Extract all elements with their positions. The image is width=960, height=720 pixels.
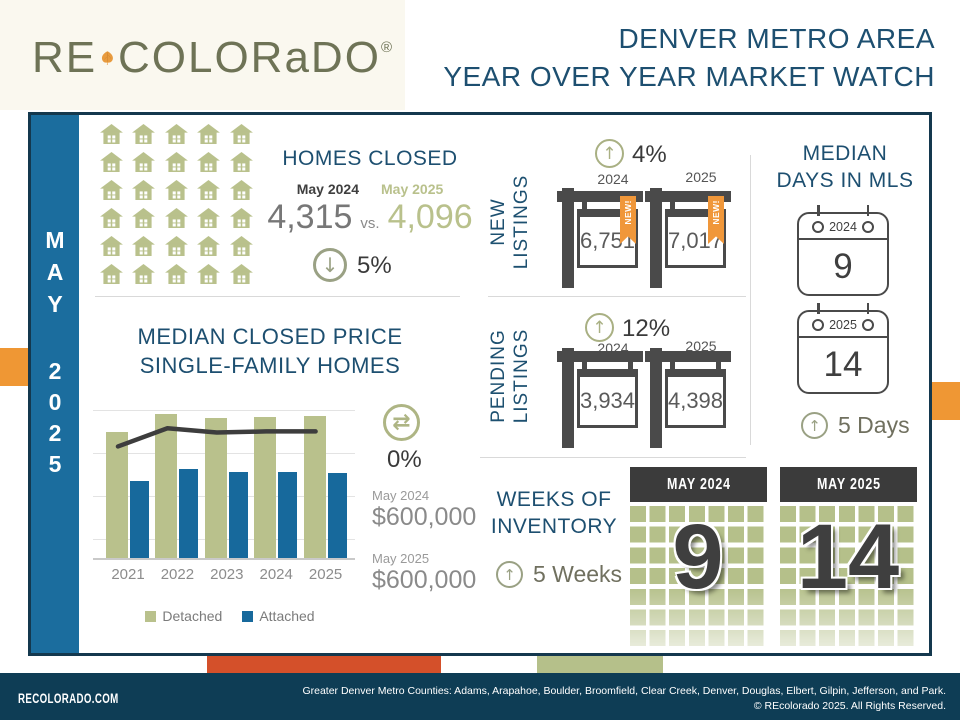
footer-copyright: © REcolorado 2025. All Rights Reserved. <box>246 699 946 714</box>
calendar-stem <box>867 205 870 216</box>
median-days-title-line2: DAYS IN MLS <box>762 167 928 194</box>
page-title-line2: YEAR OVER YEAR MARKET WATCH <box>415 58 935 96</box>
legend-item: Detached <box>145 608 222 624</box>
median-price-prev-value: $600,000 <box>372 503 476 532</box>
arrow-up-circle-icon: ↑ <box>496 561 523 588</box>
house-icon <box>100 264 123 284</box>
house-icon <box>165 208 188 228</box>
house-icon <box>132 236 155 256</box>
homes-closed-change: 5% <box>357 252 392 280</box>
weeks-inventory-change: ↑ 5 Weeks <box>496 561 622 588</box>
new-listings-label-line1: NEW <box>487 142 510 302</box>
house-icon <box>132 208 155 228</box>
inventory-2024-value: 9 <box>618 505 778 610</box>
house-icon <box>132 264 155 284</box>
homes-closed-values: 4,315 vs. 4,096 <box>255 198 485 237</box>
house-icon <box>165 264 188 284</box>
month-sidebar: MAY2025 <box>31 115 79 653</box>
house-icon <box>230 208 253 228</box>
median-days-title-line1: MEDIAN <box>762 140 928 167</box>
house-icon <box>100 152 123 172</box>
median-price-title-line2: SINGLE-FAMILY HOMES <box>85 351 455 380</box>
house-icon <box>100 208 123 228</box>
footer-legal-text: Greater Denver Metro Counties: Adams, Ar… <box>246 684 946 714</box>
sign-crossbar <box>557 351 643 362</box>
aspen-leaf-icon <box>101 34 114 82</box>
footer-counties: Greater Denver Metro Counties: Adams, Ar… <box>246 684 946 699</box>
house-icon <box>197 208 220 228</box>
inventory-2024-header: MAY 2024 <box>630 467 767 502</box>
weeks-inventory-title-line1: WEEKS OF <box>468 486 640 513</box>
median-price-title: MEDIAN CLOSED PRICE SINGLE-FAMILY HOMES <box>85 322 455 380</box>
calendar-stem <box>817 205 820 216</box>
median-price-title-line1: MEDIAN CLOSED PRICE <box>85 322 455 351</box>
house-icon <box>165 180 188 200</box>
pending-listings-2025-sign: 4,398 <box>633 348 733 453</box>
calendar-2024-icon: 2024 9 <box>797 212 889 296</box>
right-accent-block <box>932 382 960 420</box>
green-block <box>537 656 663 673</box>
logo-area: RE COLORaDO ® <box>0 0 405 110</box>
pending-listings-2025-value: 4,398 <box>665 374 726 428</box>
median-days-2025-value: 14 <box>799 338 887 391</box>
house-icon <box>197 180 220 200</box>
calendar-2025-icon: 2025 14 <box>797 310 889 394</box>
weeks-inventory-title: WEEKS OF INVENTORY <box>468 486 640 540</box>
legend-swatch <box>145 611 156 622</box>
house-icon <box>197 152 220 172</box>
new-listings-2025-label: 2025 <box>666 169 736 185</box>
house-icon <box>100 236 123 256</box>
legend-swatch <box>242 611 253 622</box>
inventory-2025-value: 14 <box>768 505 928 610</box>
calendar-stem <box>867 303 870 314</box>
logo-text-re: RE <box>32 33 97 83</box>
weeks-inventory-title-line2: INVENTORY <box>468 513 640 540</box>
legend-item: Attached <box>242 608 314 624</box>
arrow-up-circle-icon: ↑ <box>585 313 614 342</box>
homes-closed-prev-label: May 2024 <box>297 181 359 197</box>
house-icon-grid <box>100 124 262 294</box>
sidebar-char: 5 <box>31 451 79 478</box>
divider <box>750 155 751 445</box>
median-days-2024-label: 2024 <box>799 220 887 234</box>
house-icon <box>165 124 188 144</box>
house-icon <box>100 180 123 200</box>
sign-crossbar <box>645 351 731 362</box>
house-icon <box>197 236 220 256</box>
pending-listings-label-line2: LISTINGS <box>510 296 533 456</box>
new-listings-2024-sign: 6,751 NEW! <box>545 188 645 293</box>
median-days-change-value: 5 Days <box>838 412 910 439</box>
new-ribbon-text: NEW! <box>711 200 721 225</box>
sidebar-char: 0 <box>31 389 79 416</box>
house-icon <box>132 124 155 144</box>
house-icon <box>132 152 155 172</box>
sign-post <box>650 188 662 288</box>
house-icon <box>230 236 253 256</box>
pending-listings-label-line1: PENDING <box>487 296 510 456</box>
arrow-down-circle-icon: ↓ <box>313 248 347 282</box>
new-listings-label-line2: LISTINGS <box>510 142 533 302</box>
divider <box>480 457 746 458</box>
red-orange-block <box>207 656 441 673</box>
new-listings-2025-sign: 7,017 NEW! <box>633 188 733 293</box>
pending-listings-2024-value: 3,934 <box>577 374 638 428</box>
page-title-line1: DENVER METRO AREA <box>415 20 935 58</box>
weeks-inventory-change-value: 5 Weeks <box>533 561 622 588</box>
x-axis-label: 2025 <box>296 566 356 583</box>
divider <box>95 296 460 297</box>
house-icon <box>230 152 253 172</box>
pending-listings-label: PENDING LISTINGS <box>487 296 533 456</box>
arrow-up-circle-icon: ↑ <box>801 412 828 439</box>
legend-label: Attached <box>259 608 314 624</box>
median-price-change: 0% <box>387 446 417 474</box>
pending-listings-2024-sign: 3,934 <box>545 348 645 453</box>
house-icon <box>165 152 188 172</box>
median-price-curr-label: May 2025 <box>372 551 429 566</box>
inventory-2024-header-text: MAY 2024 <box>667 476 731 494</box>
page-title: DENVER METRO AREA YEAR OVER YEAR MARKET … <box>415 20 935 96</box>
house-icon <box>230 124 253 144</box>
chart-legend: DetachedAttached <box>110 608 350 624</box>
homes-closed-prev-value: 4,315 <box>267 198 352 237</box>
homes-closed-labels: May 2024 May 2025 <box>270 181 470 197</box>
registered-mark: ® <box>381 39 392 56</box>
pending-listings-change: 12% <box>622 315 670 343</box>
sign-post <box>562 348 574 448</box>
house-icon <box>165 236 188 256</box>
median-days-title: MEDIAN DAYS IN MLS <box>762 140 928 194</box>
new-listings-2024-label: 2024 <box>578 171 648 187</box>
legend-label: Detached <box>162 608 222 624</box>
house-icon <box>197 124 220 144</box>
new-ribbon-text: NEW! <box>623 200 633 225</box>
homes-closed-curr-label: May 2025 <box>381 181 443 197</box>
median-price-line <box>93 403 355 560</box>
inventory-2025-header: MAY 2025 <box>780 467 917 502</box>
sidebar-char: M <box>31 227 79 254</box>
calendar-stem <box>817 303 820 314</box>
inventory-2025-header-text: MAY 2025 <box>817 476 881 494</box>
homes-closed-vs: vs. <box>360 215 379 232</box>
house-icon <box>100 124 123 144</box>
sidebar-char: 2 <box>31 358 79 385</box>
sign-post <box>562 188 574 288</box>
median-days-change: ↑ 5 Days <box>801 412 910 439</box>
house-icon <box>230 180 253 200</box>
footer-website-link[interactable]: RECOLORADO.COM <box>18 691 119 706</box>
median-price-curr-value: $600,000 <box>372 566 476 595</box>
homes-closed-title: HOMES CLOSED <box>270 145 470 172</box>
house-icon <box>230 264 253 284</box>
sidebar-char: A <box>31 259 79 286</box>
homes-closed-curr-value: 4,096 <box>388 198 473 237</box>
price-chart: 20212022202320242025 <box>93 403 355 560</box>
new-listings-change: 4% <box>632 141 667 169</box>
arrow-up-circle-icon: ↑ <box>595 139 624 168</box>
median-days-2025-label: 2025 <box>799 318 887 332</box>
left-accent-block <box>0 348 28 386</box>
recolorado-logo: RE COLORaDO ® <box>32 30 392 86</box>
house-icon <box>197 264 220 284</box>
sidebar-char: 2 <box>31 420 79 447</box>
arrows-swap-circle-icon: ⇄ <box>383 404 420 441</box>
logo-text-colorado: COLORaDO <box>118 33 381 83</box>
median-price-prev-label: May 2024 <box>372 488 429 503</box>
new-listings-label: NEW LISTINGS <box>487 142 533 302</box>
sign-post <box>650 348 662 448</box>
sidebar-char: Y <box>31 291 79 318</box>
median-days-2024-value: 9 <box>799 240 887 293</box>
house-icon <box>132 180 155 200</box>
